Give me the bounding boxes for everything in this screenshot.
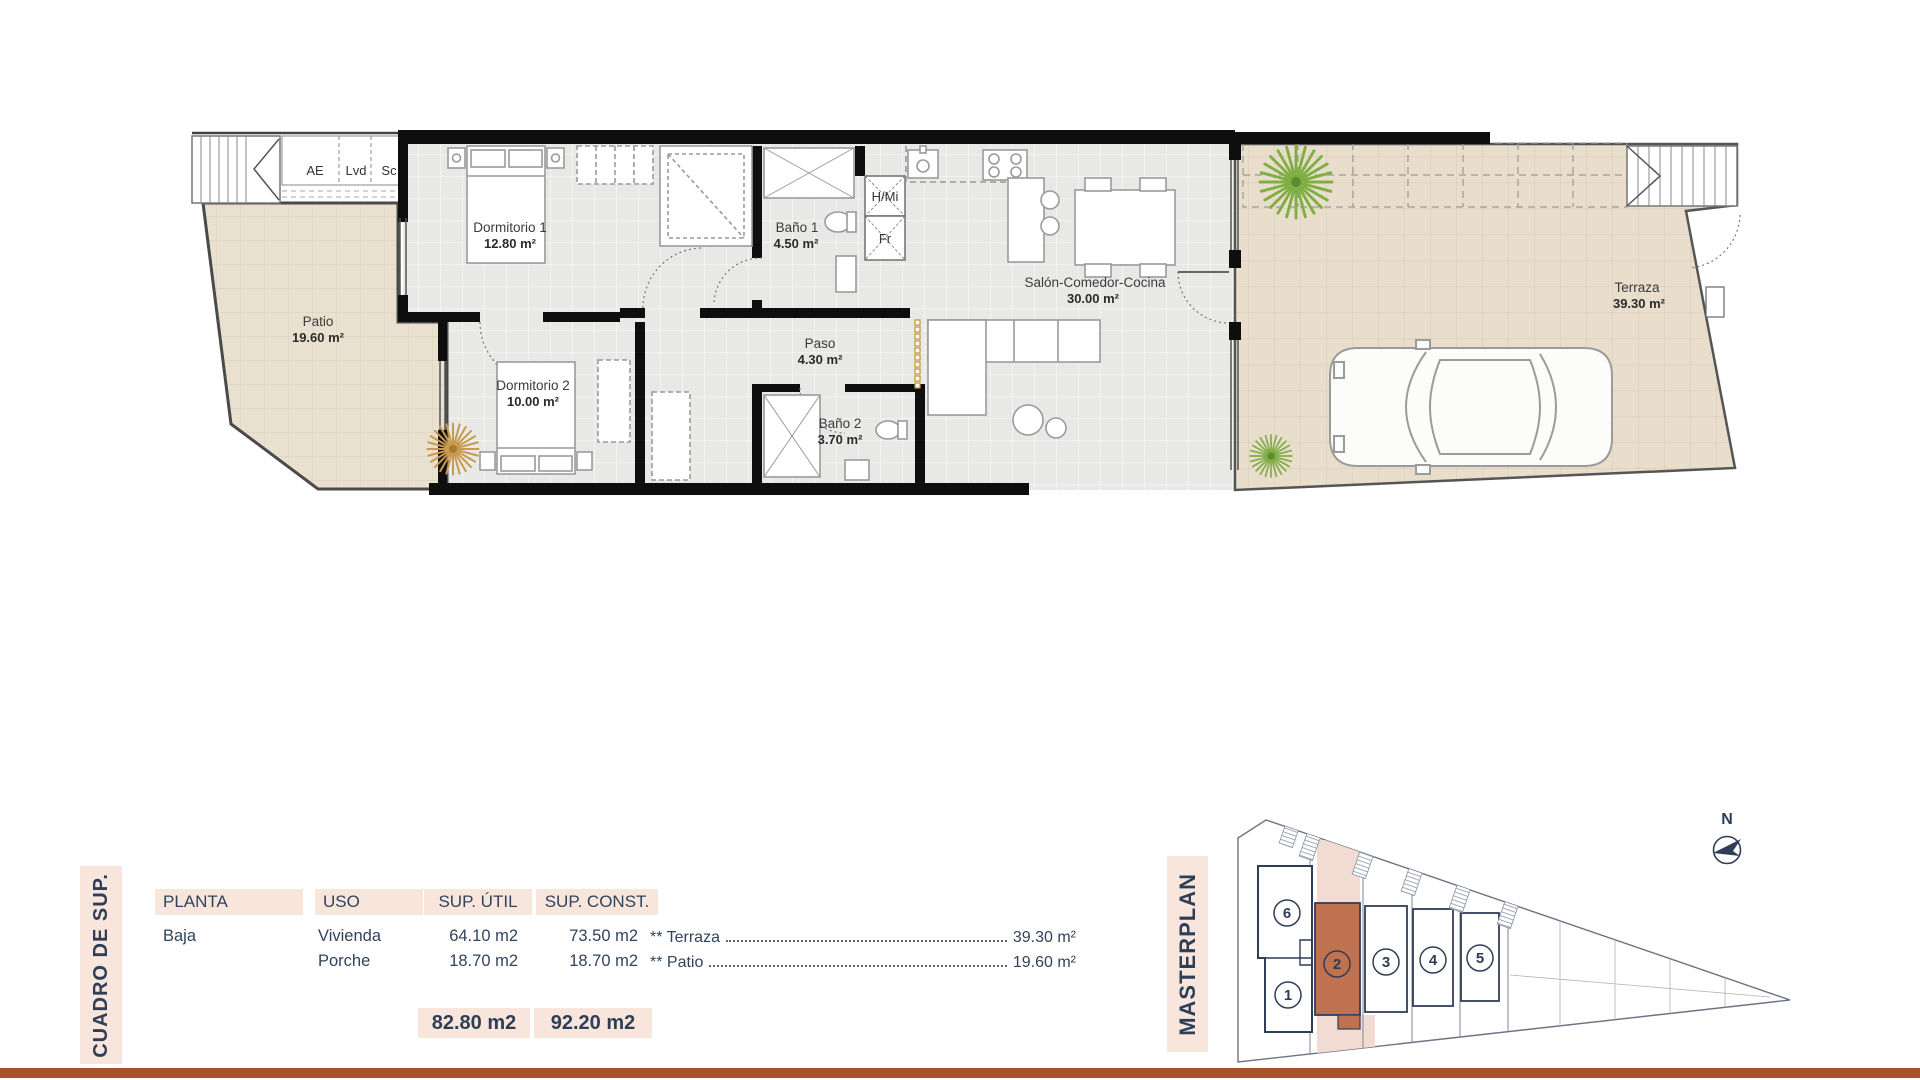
utility-box — [1706, 287, 1724, 317]
masterplan-unit-1: 1 — [1284, 987, 1292, 1004]
salon-label: Salón-Comedor-Cocina — [1024, 275, 1166, 290]
masterplan-diagram: 6 1 2 3 4 5 — [1238, 818, 1790, 1062]
sink1-icon — [836, 256, 856, 292]
dormitorio1-area-label: 12.80 m² — [484, 236, 537, 251]
cell-util-vivienda: 64.10 m2 — [414, 927, 518, 946]
wardrobe1-icon — [577, 146, 653, 184]
masterplan-unit-6: 6 — [1283, 905, 1291, 922]
patio-area-label: 19.60 m² — [292, 330, 345, 345]
dining-table-icon — [1075, 178, 1175, 277]
floorplan-sheet: AE Lvd Sc — [0, 0, 1920, 1080]
exterior-annotations: ** Terraza 39.30 m² ** Patio 19.60 m² — [650, 924, 1076, 974]
dotted-leader — [726, 940, 1007, 942]
masterplan-side-label: MASTERPLAN — [1175, 873, 1201, 1036]
toilet1-icon — [825, 212, 856, 232]
paso-area-label: 4.30 m² — [798, 352, 843, 367]
cell-const-porche: 18.70 m2 — [528, 952, 638, 971]
coffee-table-icon — [1013, 405, 1043, 435]
bano1-label: Baño 1 — [776, 220, 819, 235]
cell-planta-baja: Baja — [163, 927, 196, 946]
toilet2-icon — [876, 421, 907, 439]
paso-label: Paso — [805, 336, 836, 351]
masterplan-side-panel: MASTERPLAN — [1167, 856, 1208, 1052]
cell-util-porche: 18.70 m2 — [414, 952, 518, 971]
dormitorio2-label: Dormitorio 2 — [496, 378, 570, 393]
masterplan-unit-3: 3 — [1382, 954, 1390, 971]
north-compass-icon: N — [1713, 811, 1741, 864]
bathtub-icon — [764, 148, 854, 198]
lvd-label: Lvd — [346, 163, 367, 178]
header-sup-const: SUP. CONST. — [536, 889, 658, 915]
stairs-top-right-icon — [1627, 146, 1737, 206]
island-icon — [1008, 178, 1044, 262]
stool-icon — [1041, 217, 1059, 235]
bano2-label: Baño 2 — [819, 416, 862, 431]
total-sup-const: 92.20 m2 — [534, 1008, 652, 1038]
dormitorio1-label: Dormitorio 1 — [473, 220, 547, 235]
dormitorio2-area-label: 10.00 m² — [507, 394, 560, 409]
north-label: N — [1721, 811, 1733, 828]
annotation-patio-value: 19.60 m² — [1013, 954, 1076, 974]
entrance-door-arc — [1690, 215, 1740, 268]
header-uso: USO — [315, 889, 423, 915]
stool-icon — [1041, 191, 1059, 209]
terraza-label: Terraza — [1614, 280, 1660, 295]
car-icon — [1330, 340, 1612, 474]
masterplan-unit-2: 2 — [1333, 956, 1341, 973]
sc-label: Sc — [381, 163, 397, 178]
dotted-leader — [709, 965, 1006, 967]
plan-canvas: AE Lvd Sc — [0, 0, 1920, 1080]
masterplan-unit-4: 4 — [1429, 952, 1438, 969]
annotation-patio-label: ** Patio — [650, 954, 703, 974]
ae-label: AE — [306, 163, 324, 178]
terraza-area-label: 39.30 m² — [1613, 296, 1666, 311]
header-planta: PLANTA — [155, 889, 303, 915]
total-sup-util: 82.80 m2 — [418, 1008, 530, 1038]
cuadro-side-label: CUADRO DE SUP. — [90, 873, 113, 1058]
hmi-label: H/Mi — [872, 189, 899, 204]
laundry-strip: AE Lvd Sc — [282, 136, 403, 197]
masterplan-unit-5: 5 — [1476, 950, 1484, 967]
wardrobe2-icon — [598, 360, 630, 442]
coffee-table-icon — [1046, 418, 1066, 438]
annotation-patio: ** Patio 19.60 m² — [650, 949, 1076, 974]
salon-area-label: 30.00 m² — [1067, 291, 1120, 306]
bano1-area-label: 4.50 m² — [774, 236, 819, 251]
shower2-icon — [764, 395, 820, 477]
annotation-terraza-value: 39.30 m² — [1013, 929, 1076, 949]
cuadro-side-panel: CUADRO DE SUP. — [80, 866, 122, 1064]
annotation-terraza-label: ** Terraza — [650, 929, 720, 949]
bano2-area-label: 3.70 m² — [818, 432, 863, 447]
cell-uso-porche: Porche — [318, 952, 370, 971]
sink2-icon — [845, 460, 869, 480]
footer-accent-bar — [0, 1068, 1920, 1078]
fr-label: Fr — [879, 231, 892, 246]
storage-icon — [652, 392, 690, 480]
patio-label: Patio — [303, 314, 334, 329]
cell-const-vivienda: 73.50 m2 — [528, 927, 638, 946]
cell-uso-vivienda: Vivienda — [318, 927, 381, 946]
annotation-terraza: ** Terraza 39.30 m² — [650, 924, 1076, 949]
header-sup-util: SUP. ÚTIL — [424, 889, 532, 915]
closet-icon — [660, 146, 752, 246]
